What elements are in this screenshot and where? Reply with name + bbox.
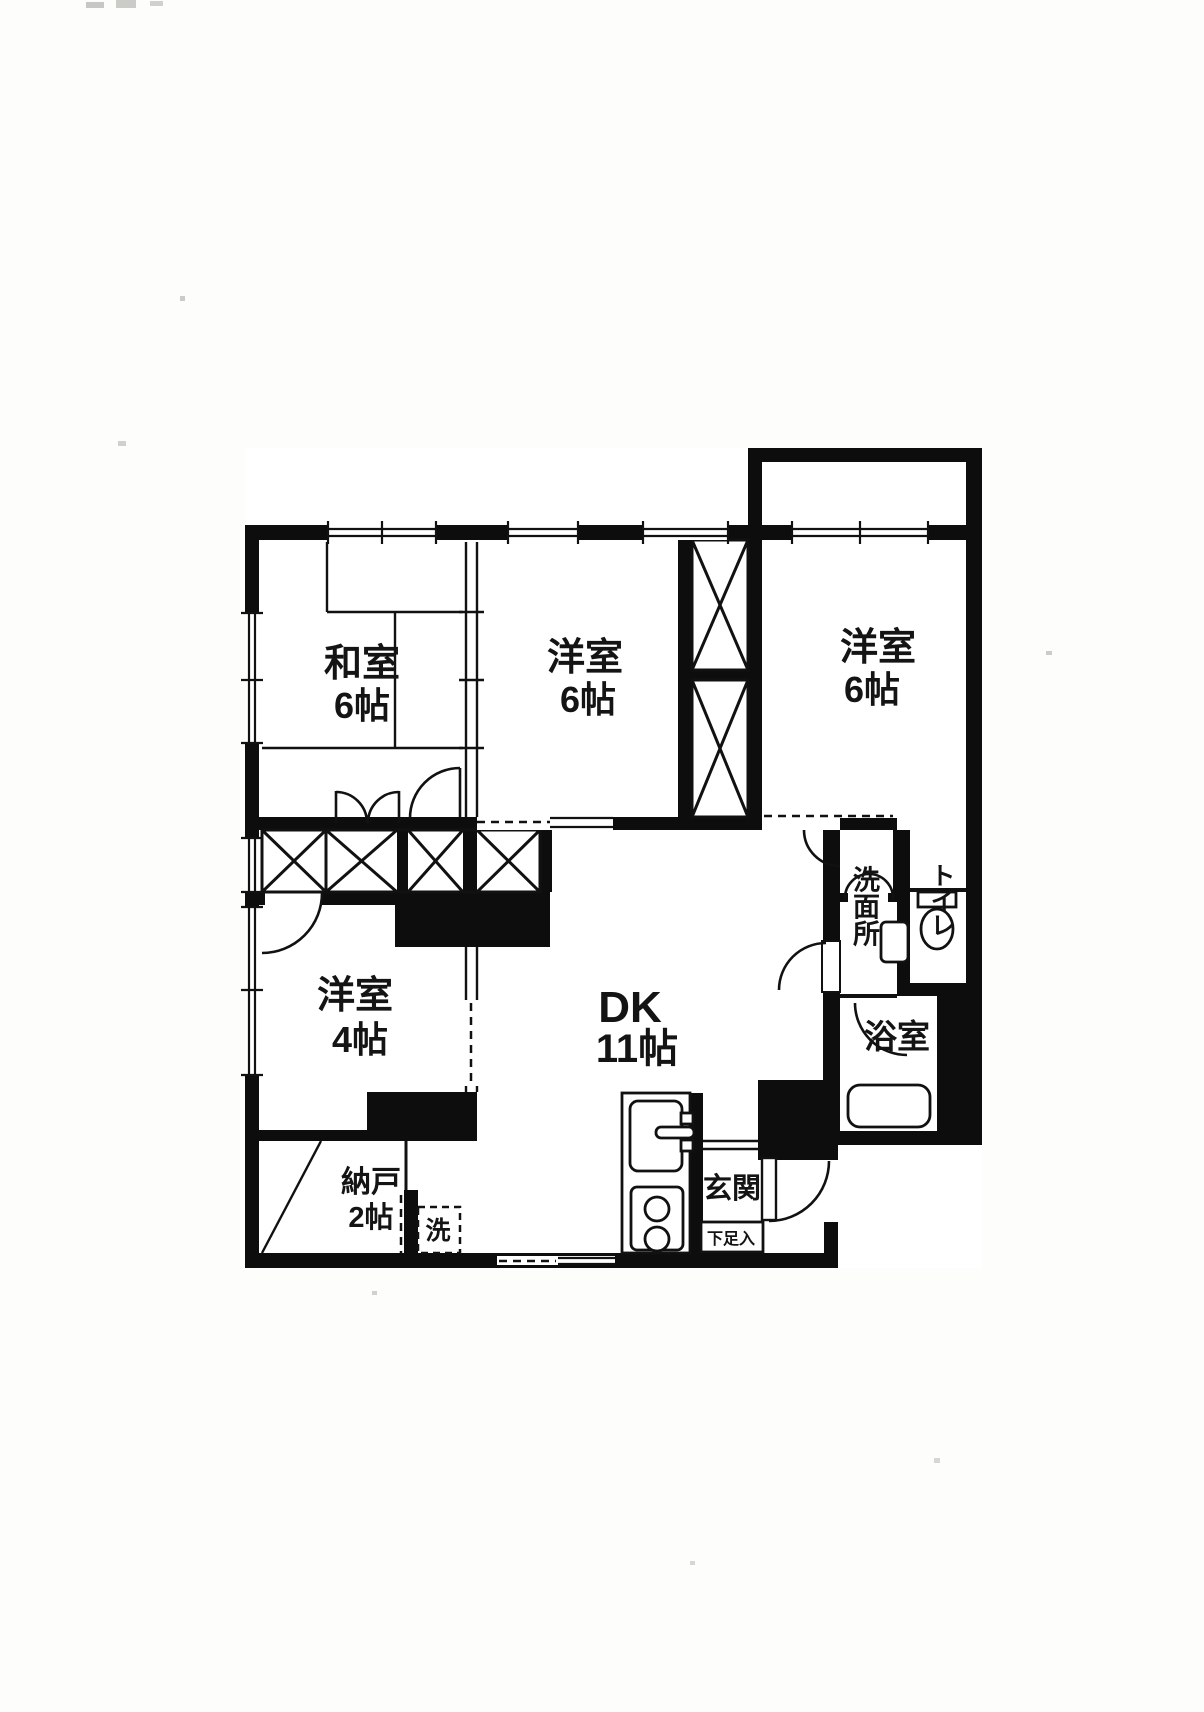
wall-storage-top-right <box>417 1130 477 1141</box>
label-laundry: 洗 <box>425 1217 450 1245</box>
speck <box>150 1 163 6</box>
room-label-western-small-size: 4帖 <box>332 1019 388 1060</box>
wall-washroom-top-stub2 <box>888 893 910 902</box>
floor-plan-drawing: 和室 6帖 洋室 6帖 洋室 6帖 洋室 4帖 DK 11帖 納戸 2帖 玄関 … <box>0 0 1204 1712</box>
wall-block-mass <box>395 892 550 947</box>
speck <box>934 1458 940 1463</box>
room-label-storage-name: 納戸 <box>341 1166 401 1199</box>
room-label-western-right-name: 洋室 <box>840 626 916 669</box>
wall-entry-right-lower <box>824 1222 838 1268</box>
label-shoe-cabinet: 下足入 <box>707 1230 755 1248</box>
room-label-storage-size: 2帖 <box>348 1201 393 1234</box>
wall-mid-right <box>840 818 897 830</box>
room-label-japanese-name: 和室 <box>324 642 400 685</box>
wall-balcony-left <box>748 448 762 540</box>
wall-closet-divider <box>397 830 408 892</box>
wall-closet-bottom-stub <box>259 892 265 905</box>
faucet-valve-icon <box>681 1140 693 1151</box>
wall-closet-column-right <box>748 540 762 830</box>
stove-burner-icon <box>645 1197 669 1221</box>
speck <box>1046 651 1052 655</box>
room-label-dk-name: DK <box>598 983 662 1032</box>
label-washroom: 洗面所 <box>849 865 880 947</box>
stove-burner-icon <box>645 1227 669 1251</box>
wall-washroom-left-lower <box>823 993 840 1131</box>
speck <box>118 441 126 446</box>
faucet-valve-icon <box>681 1113 693 1124</box>
faucet-icon <box>656 1127 694 1138</box>
wall-bath-bottom <box>838 1131 982 1145</box>
wall-storage-top-left <box>259 1130 405 1141</box>
room-label-dk-size: 11帖 <box>596 1027 678 1071</box>
wall-hall-right <box>893 830 910 902</box>
room-label-western-center-name: 洋室 <box>547 636 623 679</box>
wall-partition-thick <box>463 817 477 892</box>
wall-closet-column-left <box>678 540 692 817</box>
speck <box>180 296 185 301</box>
speck <box>372 1291 377 1295</box>
wall-balcony-top <box>748 448 982 462</box>
wall-washroom-left-upper <box>823 830 840 943</box>
washbasin <box>881 922 908 962</box>
room-label-japanese-size: 6帖 <box>334 685 390 726</box>
wall-closet-cap <box>540 830 552 892</box>
wall-toilet-bottom <box>897 983 966 996</box>
label-entrance: 玄関 <box>703 1171 761 1205</box>
room-label-western-right-size: 6帖 <box>844 669 900 710</box>
wall-mid-center <box>613 817 762 830</box>
floor-plan-page: 和室 6帖 洋室 6帖 洋室 6帖 洋室 4帖 DK 11帖 納戸 2帖 玄関 … <box>0 0 1204 1712</box>
room-label-western-center-size: 6帖 <box>560 679 616 720</box>
bathtub <box>848 1085 930 1127</box>
wall-closet-bottom <box>322 892 399 905</box>
speck <box>116 0 136 8</box>
room-label-western-small-name: 洋室 <box>317 974 393 1017</box>
label-bath: 浴室 <box>864 1018 930 1055</box>
wall-storage-bar <box>404 1190 418 1253</box>
label-toilet: トイレ <box>927 863 955 938</box>
speck <box>86 2 104 8</box>
speck <box>690 1561 695 1565</box>
wall-bath-right-thick <box>937 996 982 1131</box>
